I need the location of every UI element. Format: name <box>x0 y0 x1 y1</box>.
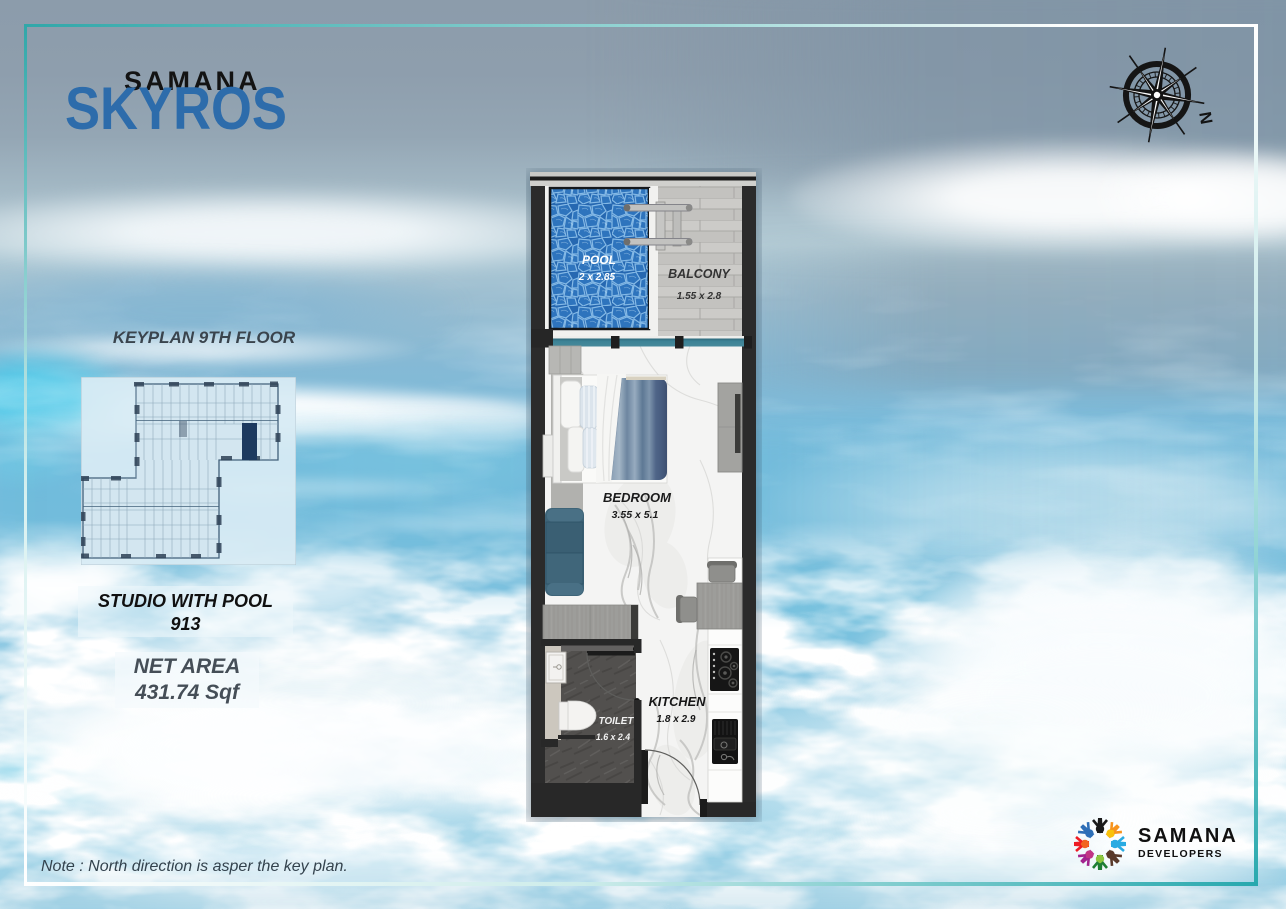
svg-text:N: N <box>1195 110 1216 125</box>
svg-text:BALCONY: BALCONY <box>668 267 731 281</box>
svg-text:1.55 x 2.8: 1.55 x 2.8 <box>677 291 722 302</box>
svg-text:BEDROOM: BEDROOM <box>603 490 672 505</box>
svg-text:KITCHEN: KITCHEN <box>649 694 707 709</box>
svg-text:POOL: POOL <box>582 253 616 267</box>
svg-text:1.6 x 2.4: 1.6 x 2.4 <box>596 732 630 742</box>
svg-text:DEVELOPERS: DEVELOPERS <box>1138 848 1223 860</box>
svg-text:SKYROS: SKYROS <box>65 77 287 137</box>
svg-text:2 x 2.85: 2 x 2.85 <box>578 272 616 283</box>
svg-text:3.55 x 5.1: 3.55 x 5.1 <box>612 509 659 521</box>
svg-text:1.8 x 2.9: 1.8 x 2.9 <box>657 714 696 725</box>
svg-text:SAMANA: SAMANA <box>1138 825 1238 847</box>
svg-text:TOILET: TOILET <box>599 716 635 727</box>
